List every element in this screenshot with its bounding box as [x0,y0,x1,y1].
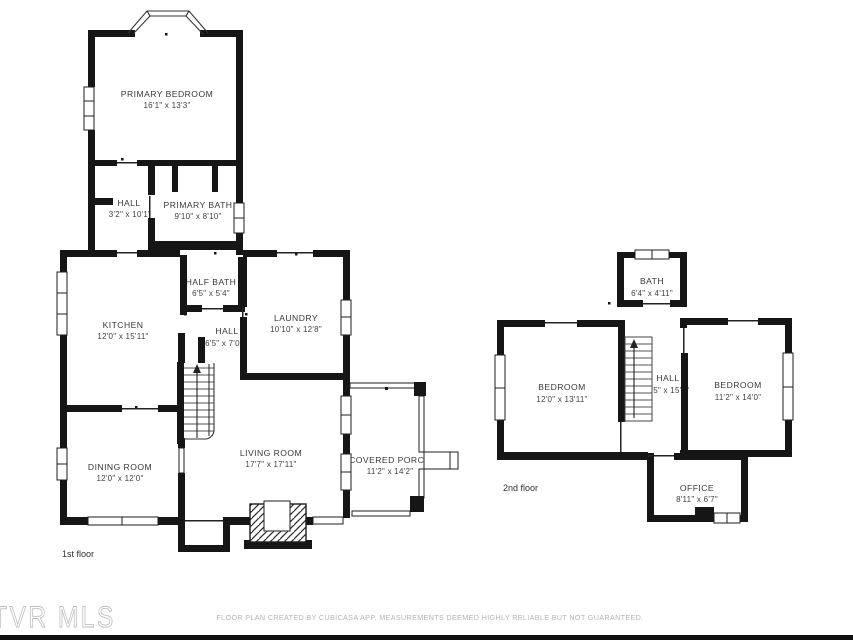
fireplace [244,501,312,549]
room-label-primary-bedroom: PRIMARY BEDROOM [121,89,213,99]
floor-plan-canvas: PRIMARY BEDROOM 16'1" x 13'3" HALL 3'2" … [0,0,853,640]
disclaimer-text: FLOOR PLAN CREATED BY CUBICASA APP. MEAS… [216,613,643,622]
window-porch-wall-lower [341,454,351,490]
room-dims-living-room: 17'7" x 17'11" [245,460,296,469]
room-dims-main-hall: 6'5" x 7'0" [205,339,243,348]
room-label-dining-room: DINING ROOM [88,462,152,472]
window-office-bottom [714,513,740,523]
room-dims-half-bath: 6'5" x 5'4" [192,289,230,298]
window-porch-wall-upper [341,396,351,434]
room-dims-office: 8'11" x 6'7" [676,495,718,504]
second-floor-caption: 2nd floor [503,483,538,493]
room-dims-bedroom-right: 11'2" x 14'0" [715,393,762,402]
room-label-bedroom-right: BEDROOM [714,380,762,390]
window-dining-bottom [88,517,158,525]
watermark-text: TVR MLS [0,600,116,634]
room-label-main-hall: HALL [215,326,238,336]
window-laundry-right [341,300,351,335]
watermark: TVR MLS [0,600,116,634]
room-label-covered-porch: COVERED PORCH [349,455,431,465]
room-label-kitchen: KITCHEN [103,320,144,330]
chimney-block [695,507,714,517]
window-primary-bedroom-left [84,87,94,130]
first-floor-caption: 1st floor [62,549,94,559]
window-primary-bath-right [234,203,244,233]
room-label-bath: BATH [640,276,664,286]
room-label-hall-upper: HALL [117,198,140,208]
room-label-living-room: LIVING ROOM [240,448,302,458]
room-dims-laundry: 10'10" x 12'8" [270,325,322,334]
room-label-hall-second: HALL [656,373,679,383]
room-dims-kitchen: 12'0" x 15'11" [97,332,148,341]
window-dining-left [57,448,67,480]
room-dims-hall-upper: 3'2" x 10'1" [109,210,151,219]
room-label-primary-bath: PRIMARY BATH [164,200,233,210]
window-bedroom-right [783,353,793,420]
room-label-office: OFFICE [680,483,714,493]
room-label-half-bath: HALF BATH [186,277,237,287]
window-living-bottom [313,517,343,524]
bottom-border [0,635,853,640]
window-bedroom-left [495,355,505,420]
room-dims-bedroom-left: 12'0" x 13'11" [536,395,587,404]
room-dims-covered-porch: 11'2" x 14'2" [367,467,414,476]
room-label-laundry: LAUNDRY [274,313,318,323]
window-bath-top [635,250,669,259]
staircase-first-floor [184,363,215,439]
staircase-second-floor [625,337,652,421]
room-dims-bath: 6'4" x 4'11" [631,289,673,298]
window-kitchen-left [57,272,67,335]
room-dims-primary-bath: 9'10" x 8'10" [174,212,221,221]
floor-plan-page: PRIMARY BEDROOM 16'1" x 13'3" HALL 3'2" … [0,0,853,640]
room-dims-primary-bedroom: 16'1" x 13'3" [143,101,190,110]
porch-landing [424,452,458,469]
room-dims-dining-room: 12'0" x 12'0" [96,474,143,483]
room-label-bedroom-left: BEDROOM [538,382,586,392]
